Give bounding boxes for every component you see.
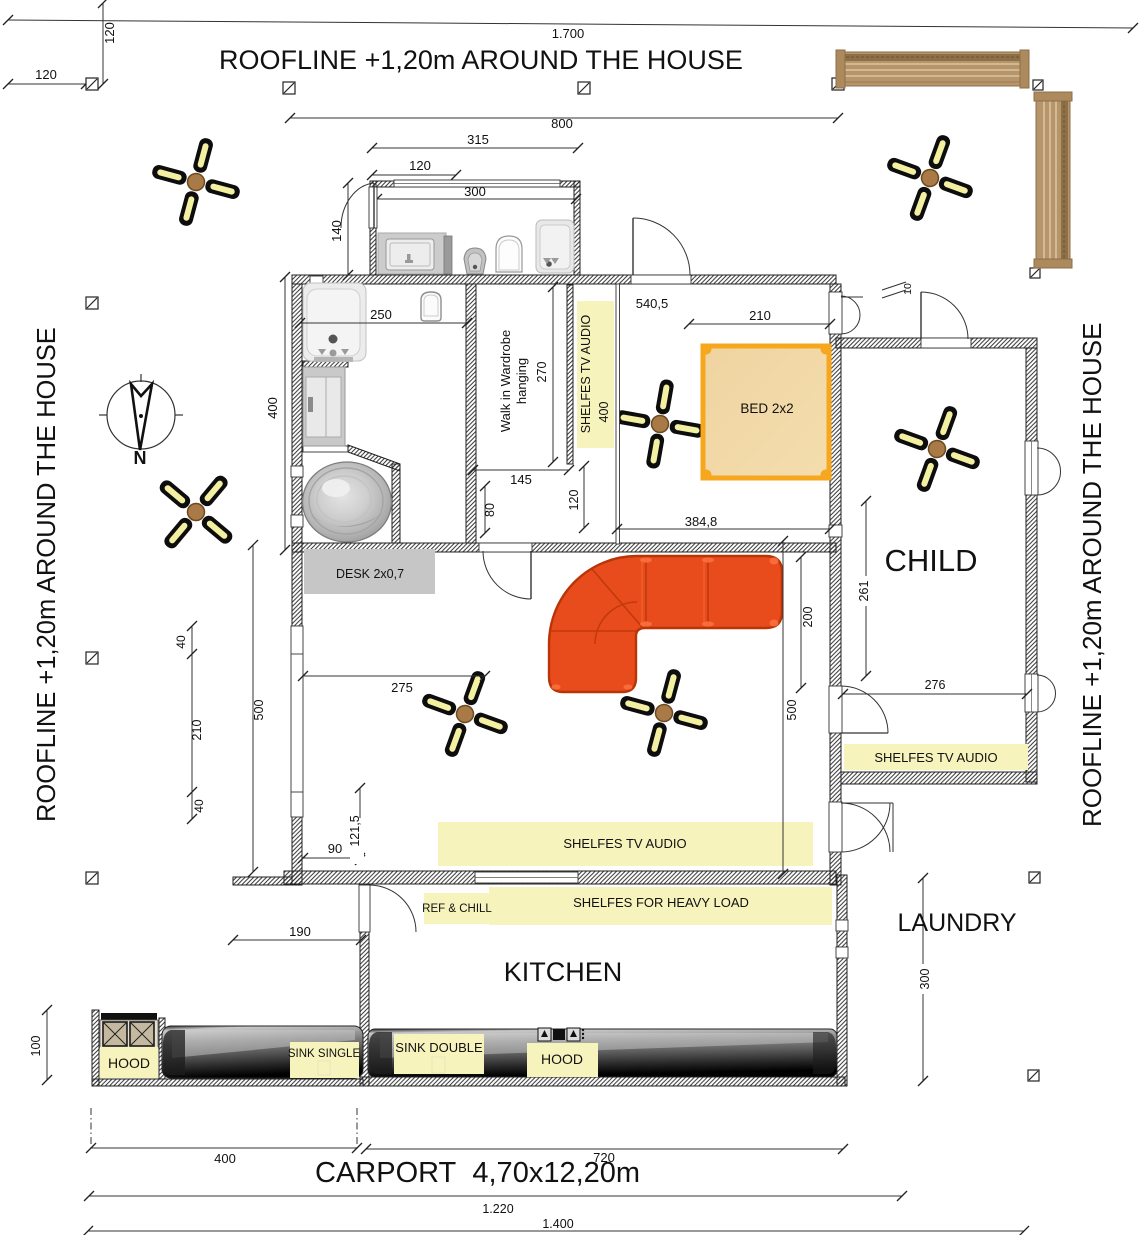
svg-text:SINK DOUBLE: SINK DOUBLE	[395, 1040, 483, 1055]
svg-text:SHELFES TV AUDIO: SHELFES TV AUDIO	[579, 314, 593, 433]
svg-text:145: 145	[510, 472, 532, 487]
svg-text:40: 40	[174, 635, 188, 649]
svg-text:300: 300	[918, 969, 932, 990]
svg-text:10: 10	[902, 283, 914, 295]
svg-text:ROOFLINE +1,20m AROUND THE HOU: ROOFLINE +1,20m AROUND THE HOUSE	[1077, 323, 1107, 827]
svg-text:LAUNDRY: LAUNDRY	[897, 909, 1016, 937]
svg-text:800: 800	[551, 116, 573, 131]
svg-text:REF & CHILL: REF & CHILL	[422, 903, 492, 915]
svg-text:ROOFLINE +1,20m AROUND THE HOU: ROOFLINE +1,20m AROUND THE HOUSE	[33, 327, 61, 822]
svg-text:720: 720	[593, 1150, 615, 1165]
svg-text:ROOFLINE +1,20m AROUND THE HOU: ROOFLINE +1,20m AROUND THE HOUSE	[219, 45, 743, 75]
svg-text:1.400: 1.400	[542, 1217, 573, 1231]
svg-text:KITCHEN: KITCHEN	[504, 957, 623, 987]
svg-text:120: 120	[102, 22, 117, 44]
svg-text:270: 270	[535, 362, 549, 383]
svg-text:HOOD: HOOD	[108, 1055, 150, 1071]
svg-text:N: N	[134, 448, 147, 468]
svg-text:SHELFES TV AUDIO: SHELFES TV AUDIO	[874, 750, 997, 765]
svg-text:275: 275	[391, 680, 413, 695]
svg-text:SHELFES FOR HEAVY LOAD: SHELFES FOR HEAVY LOAD	[573, 895, 749, 910]
svg-text:80: 80	[483, 503, 497, 517]
svg-text:1.220: 1.220	[482, 1202, 513, 1216]
svg-text:500: 500	[785, 700, 799, 721]
svg-text:315: 315	[467, 132, 489, 147]
svg-text:384,8: 384,8	[685, 514, 718, 529]
svg-text:250: 250	[370, 307, 392, 322]
svg-text:540,5: 540,5	[636, 296, 669, 311]
svg-text:SHELFES TV AUDIO: SHELFES TV AUDIO	[563, 836, 686, 851]
svg-text:210: 210	[190, 720, 204, 741]
svg-text:40: 40	[192, 799, 206, 813]
svg-text:190: 190	[289, 924, 311, 939]
svg-text:100: 100	[29, 1036, 43, 1057]
svg-text:DESK 2x0,7: DESK 2x0,7	[336, 567, 404, 581]
svg-text:HOOD: HOOD	[541, 1051, 583, 1067]
svg-text:hanging: hanging	[514, 358, 529, 404]
svg-text:120: 120	[35, 67, 57, 82]
svg-text:400: 400	[214, 1151, 236, 1166]
svg-text:SINK SINGLE: SINK SINGLE	[288, 1048, 361, 1060]
svg-text:Walk in Wardrobe: Walk in Wardrobe	[498, 330, 513, 432]
svg-text:400: 400	[265, 397, 280, 419]
svg-text:120: 120	[567, 490, 581, 511]
svg-text:140: 140	[329, 220, 344, 242]
svg-text:120: 120	[409, 158, 431, 173]
svg-text:400: 400	[597, 402, 611, 423]
svg-text:261: 261	[857, 581, 871, 602]
svg-text:CARPORT 4,70x12,20m: CARPORT 4,70x12,20m	[315, 1157, 640, 1189]
svg-text:500: 500	[252, 700, 266, 721]
svg-text:276: 276	[925, 678, 946, 692]
svg-text:200: 200	[801, 607, 815, 628]
svg-text:BED 2x2: BED 2x2	[740, 401, 793, 416]
svg-text:CHILD: CHILD	[884, 543, 977, 578]
svg-text:1.700: 1.700	[552, 26, 585, 41]
svg-text:121,5: 121,5	[348, 815, 362, 846]
svg-text:90: 90	[328, 841, 342, 856]
svg-text:210: 210	[749, 308, 771, 323]
